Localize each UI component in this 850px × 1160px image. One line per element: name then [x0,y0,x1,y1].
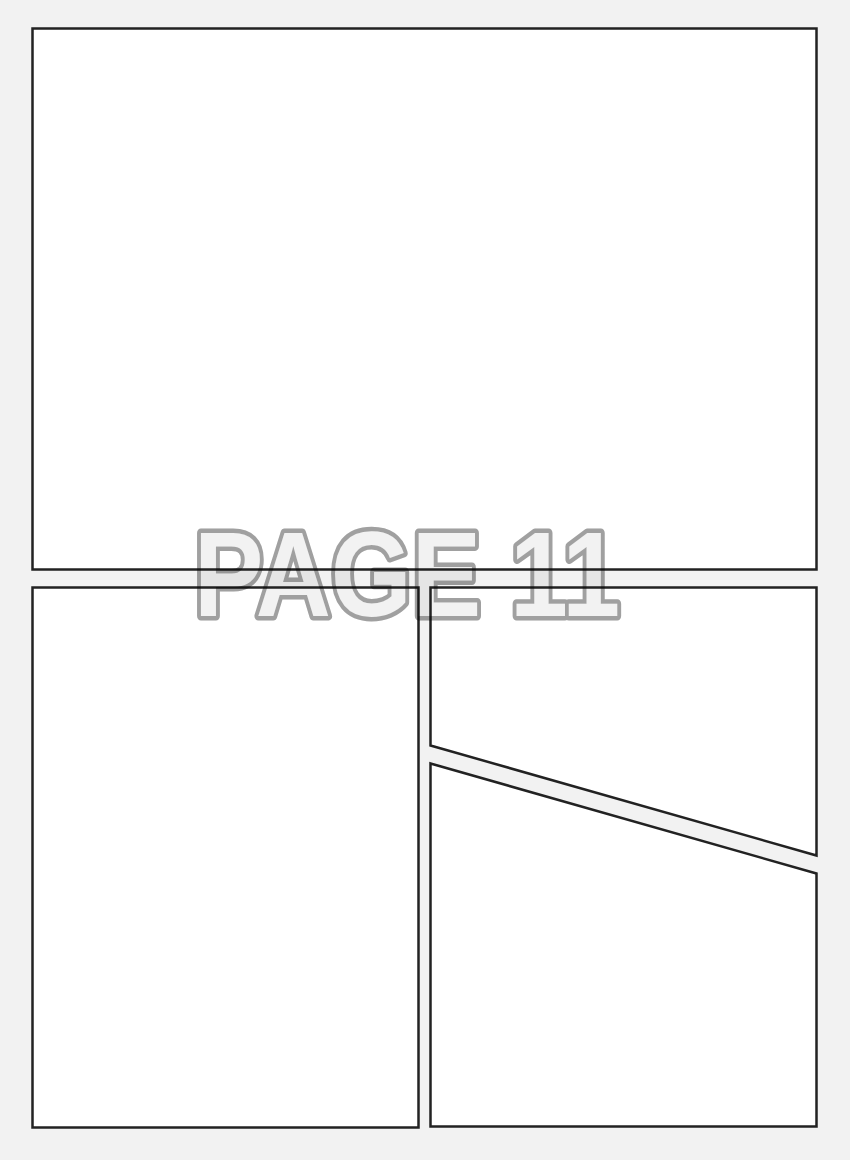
comic-page-canvas: PAGE 11 [0,0,850,1160]
comic-template-page: PAGE 11 [0,0,850,1160]
comic-panel-top [33,29,817,570]
page-title: PAGE 11 [194,507,620,641]
comic-panel-bottom-left [33,588,419,1128]
